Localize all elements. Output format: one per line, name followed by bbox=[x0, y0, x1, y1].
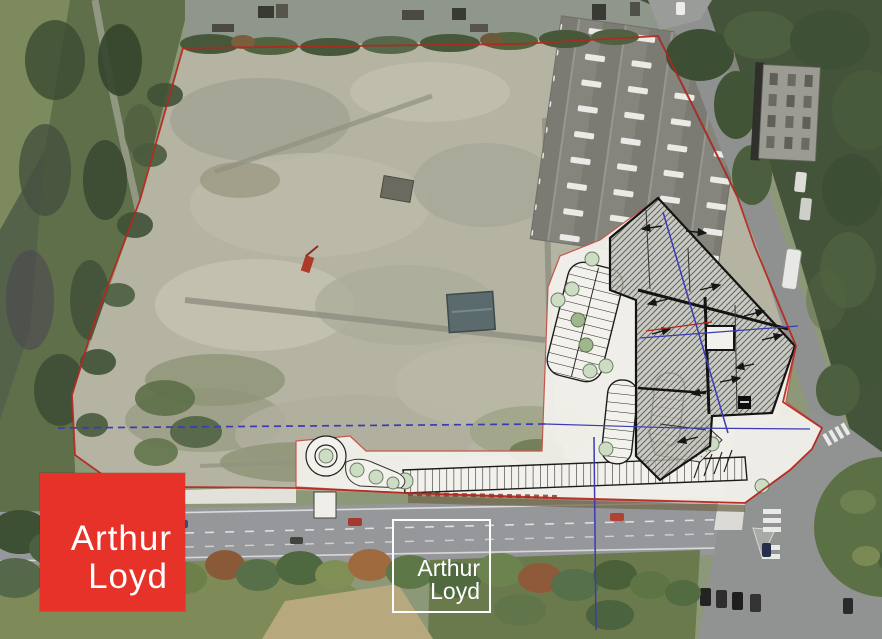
parked-car bbox=[732, 592, 743, 610]
arthur-loyd-logo: Arthur Loyd bbox=[40, 473, 185, 611]
aerial-site-plan-screenshot: Arthur Loyd Arthur Loyd bbox=[0, 0, 882, 639]
arthur-loyd-watermark: Arthur Loyd bbox=[392, 519, 491, 613]
car bbox=[843, 598, 853, 614]
roundabout-stub bbox=[314, 492, 336, 518]
car bbox=[676, 2, 685, 15]
storage-shed bbox=[380, 176, 413, 203]
logo-text-line1: Arthur bbox=[71, 519, 172, 559]
car bbox=[348, 518, 362, 526]
stair-square bbox=[738, 396, 751, 409]
metal-shed bbox=[447, 291, 496, 332]
car bbox=[290, 537, 303, 544]
parked-van bbox=[794, 172, 807, 193]
car bbox=[762, 543, 771, 557]
office-building bbox=[750, 62, 820, 163]
logo-text-line2: Loyd bbox=[88, 557, 168, 597]
courtyard bbox=[706, 326, 734, 350]
watermark-text-line2: Loyd bbox=[430, 578, 480, 605]
parked-van bbox=[799, 198, 812, 221]
parked-car bbox=[750, 594, 761, 612]
roadside-strip bbox=[180, 487, 296, 504]
parked-car bbox=[700, 588, 711, 606]
car bbox=[610, 513, 624, 521]
parked-car bbox=[716, 590, 727, 608]
